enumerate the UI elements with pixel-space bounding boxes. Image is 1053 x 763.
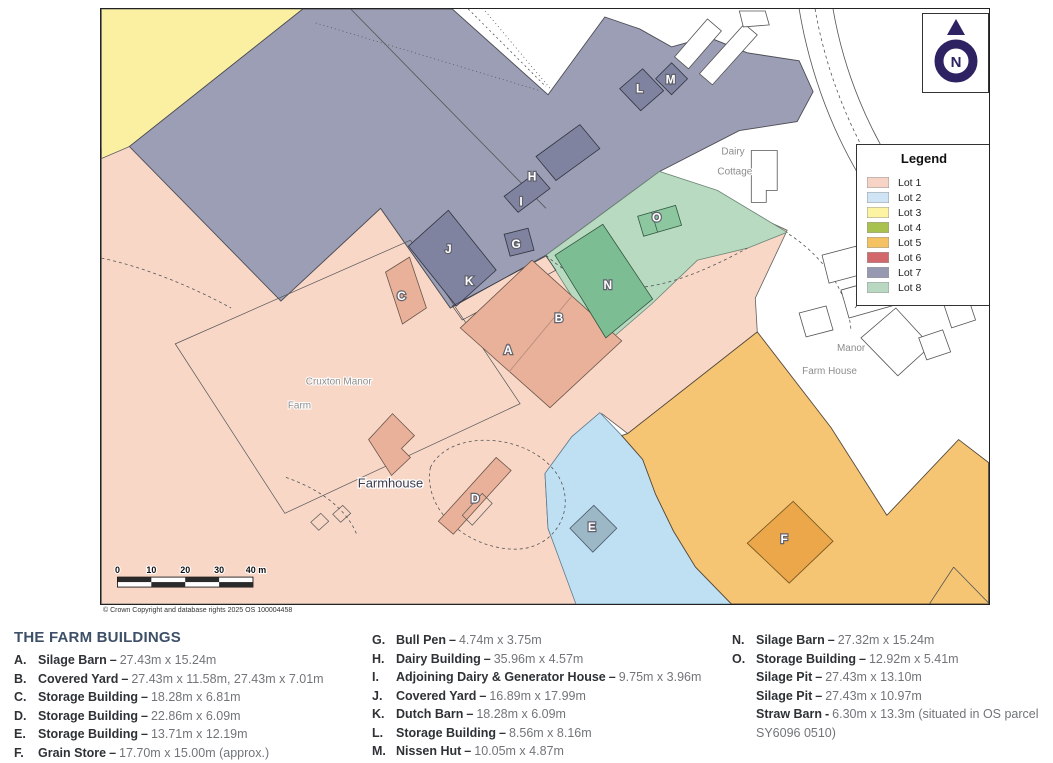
legend-label-lot6: Lot 6 [898,252,921,264]
legend-item-lot5: Lot 5 [867,235,981,250]
map-legend: Legend Lot 1 Lot 2 Lot 3 Lot 4 Lot 5 Lot… [856,144,990,306]
lot3-swatch [867,207,889,218]
legend-label-lot7: Lot 7 [898,267,921,279]
cottage-label: Cottage [717,166,752,177]
scale-tick-30: 30 [214,565,224,575]
cruxton-manor-label: Cruxton Manor [306,377,373,388]
legend-item-lot8: Lot 8 [867,280,981,295]
list-item-k: K.Dutch Barn–18.28m x 6.09m [372,705,728,724]
building-list-column-2: G.Bull Pen–4.74m x 3.75m H.Dairy Buildin… [372,631,728,761]
lot7-swatch [867,267,889,278]
list-item-d: D.Storage Building–22.86m x 6.09m [14,707,364,726]
building-label-e: E [588,520,596,534]
building-label-n: N [603,278,612,292]
scale-tick-10: 10 [146,565,156,575]
list-item-n: N.Silage Barn–27.32m x 15.24m [732,631,1048,650]
list-item-f: F.Grain Store–17.70m x 15.00m (approx.) [14,744,364,763]
legend-label-lot5: Lot 5 [898,237,921,249]
building-label-g: G [511,237,520,251]
legend-label-lot1: Lot 1 [898,177,921,189]
lot5-swatch [867,237,889,248]
list-item-e: E.Storage Building–13.71m x 12.19m [14,725,364,744]
list-item-a: A.Silage Barn–27.43m x 15.24m [14,651,364,670]
list-item-c: C.Storage Building–18.28m x 6.81m [14,688,364,707]
building-label-l: L [636,82,643,96]
list-item-g: G.Bull Pen–4.74m x 3.75m [372,631,728,650]
legend-item-lot3: Lot 3 [867,205,981,220]
building-label-i: I [519,194,522,208]
legend-item-lot7: Lot 7 [867,265,981,280]
dairy-cottage-building [751,151,777,203]
legend-label-lot4: Lot 4 [898,222,921,234]
north-letter: N [951,54,962,71]
legend-item-lot4: Lot 4 [867,220,981,235]
list-item-silage-pit-1: Silage Pit–27.43m x 13.10m [732,668,1048,687]
building-label-k: K [465,274,474,288]
manor-farm-house-label: Farm House [802,366,857,377]
lot8-swatch [867,282,889,293]
building-label-h: H [528,169,537,183]
building-label-m: M [666,73,676,87]
legend-item-lot1: Lot 1 [867,175,981,190]
legend-item-lot2: Lot 2 [867,190,981,205]
site-plan-svg: A B C D E F G H I J K L M N O Cruxton Ma… [101,9,989,604]
list-item-l: L.Storage Building–8.56m x 8.16m [372,724,728,743]
building-label-o: O [652,210,661,224]
list-item-b: B.Covered Yard–27.43m x 11.58m, 27.43m x… [14,670,364,689]
building-label-d: D [471,491,480,505]
cruxton-farm-label: Farm [288,401,311,412]
os-copyright-text: © Crown Copyright and database rights 20… [103,607,292,614]
list-item-j: J.Covered Yard–16.89m x 17.99m [372,687,728,706]
scale-tick-20: 20 [180,565,190,575]
building-list-column-3: N.Silage Barn–27.32m x 15.24m O.Storage … [732,631,1048,742]
manor-label: Manor [837,343,866,354]
building-label-b: B [555,311,564,325]
list-item-silage-pit-2: Silage Pit–27.43m x 10.97m [732,687,1048,706]
list-item-h: H.Dairy Building–35.96m x 4.57m [372,650,728,669]
north-arrow-icon: N [923,14,988,92]
dairy-label: Dairy [721,147,744,158]
legend-item-lot6: Lot 6 [867,250,981,265]
legend-label-lot3: Lot 3 [898,207,921,219]
building-label-a: A [504,343,513,357]
page: { "map": { "copyright": "© Crown Copyrig… [0,0,1053,763]
list-item-i: I.Adjoining Dairy & Generator House–9.75… [372,668,728,687]
building-label-c: C [397,289,406,303]
list-item-straw-barn: Straw Barn-6.30m x 13.3m (situated in OS… [732,705,1048,742]
scale-tick-0: 0 [115,565,120,575]
lot1-swatch [867,177,889,188]
scale-tick-40: 40 m [246,565,266,575]
legend-label-lot2: Lot 2 [898,192,921,204]
legend-label-lot8: Lot 8 [898,282,921,294]
farm-buildings-title: THE FARM BUILDINGS [14,629,364,646]
lot4-swatch [867,222,889,233]
lot2-swatch [867,192,889,203]
lot6-swatch [867,252,889,263]
north-arrow-box: N [922,13,989,93]
building-label-f: F [781,532,788,546]
building-list-column-1: THE FARM BUILDINGS A.Silage Barn–27.43m … [14,629,364,762]
site-plan-map: A B C D E F G H I J K L M N O Cruxton Ma… [100,8,990,605]
farmhouse-label: Farmhouse [358,475,423,490]
legend-title: Legend [867,151,981,166]
list-item-m: M.Nissen Hut–10.05m x 4.87m [372,742,728,761]
building-label-j: J [445,242,452,256]
list-item-o: O.Storage Building–12.92m x 5.41m [732,650,1048,669]
